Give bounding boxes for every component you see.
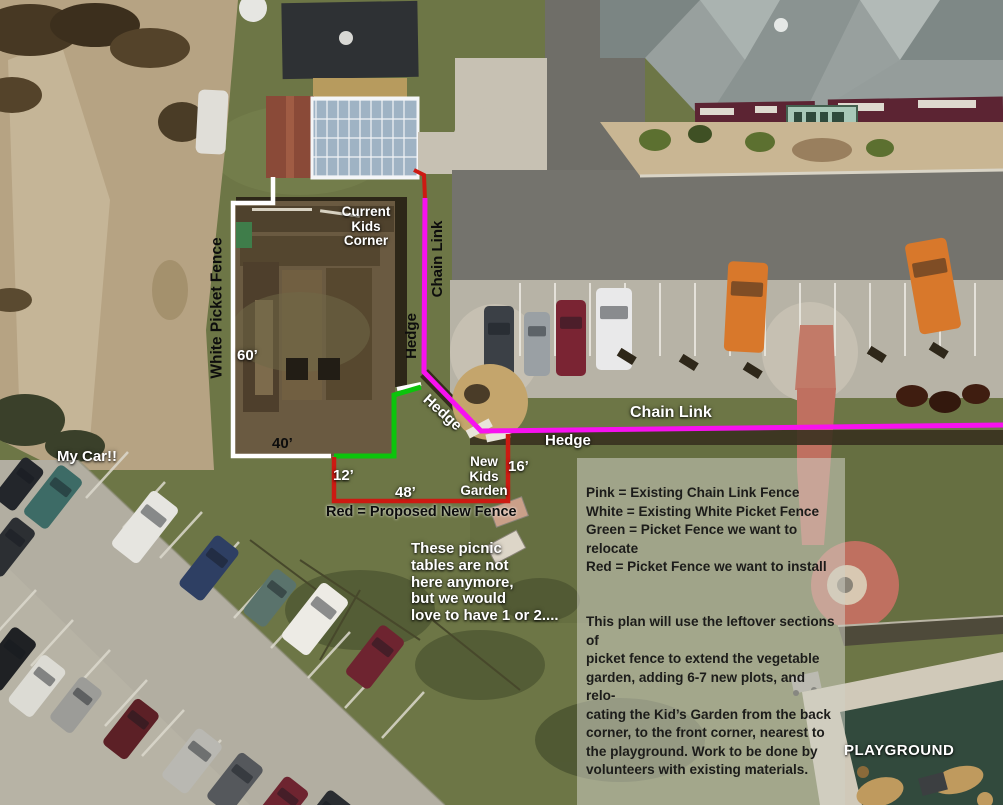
new-kids-garden-label: New Kids Garden bbox=[460, 455, 507, 499]
legend-key-lines: Pink = Existing Chain Link Fence White =… bbox=[586, 484, 836, 576]
measurement-48ft: 48’ bbox=[395, 485, 416, 501]
car-windshield bbox=[528, 326, 546, 336]
car bbox=[524, 312, 550, 376]
white-picket-fence-label: White Picket Fence bbox=[210, 237, 227, 378]
car bbox=[724, 261, 769, 353]
measurement-16ft: 16’ bbox=[508, 459, 529, 475]
chain-link-horizontal-label: Chain Link bbox=[630, 404, 712, 421]
dirt-area bbox=[0, 0, 238, 470]
my-car-label: My Car!! bbox=[57, 449, 117, 465]
landscaping-strip bbox=[600, 122, 1003, 176]
playground-label: PLAYGROUND bbox=[844, 743, 954, 759]
measurement-40ft: 40’ bbox=[272, 436, 293, 452]
hedge-horizontal-label: Hedge bbox=[545, 433, 591, 449]
car bbox=[556, 300, 586, 376]
car-windshield bbox=[560, 317, 582, 329]
car-windshield bbox=[488, 323, 510, 335]
hedge-vertical-label: Hedge bbox=[404, 313, 420, 359]
site-plan-image: My Car!! White Picket Fence Current Kids… bbox=[0, 0, 1003, 805]
aerial-photo bbox=[0, 0, 1003, 805]
picnic-tables-note: These picnic tables are not here anymore… bbox=[411, 541, 559, 625]
red-proposed-label: Red = Proposed New Fence bbox=[326, 505, 517, 521]
current-kids-corner-label: Current Kids Corner bbox=[342, 205, 391, 249]
measurement-60ft: 60’ bbox=[237, 348, 258, 364]
chain-link-vertical-label: Chain Link bbox=[430, 221, 446, 298]
car-windshield bbox=[731, 281, 764, 297]
legend-box: Pink = Existing Chain Link Fence White =… bbox=[577, 458, 845, 805]
car-windshield bbox=[600, 306, 628, 319]
legend-body-text: This plan will use the leftover sections… bbox=[586, 613, 836, 779]
measurement-12ft: 12’ bbox=[333, 468, 354, 484]
